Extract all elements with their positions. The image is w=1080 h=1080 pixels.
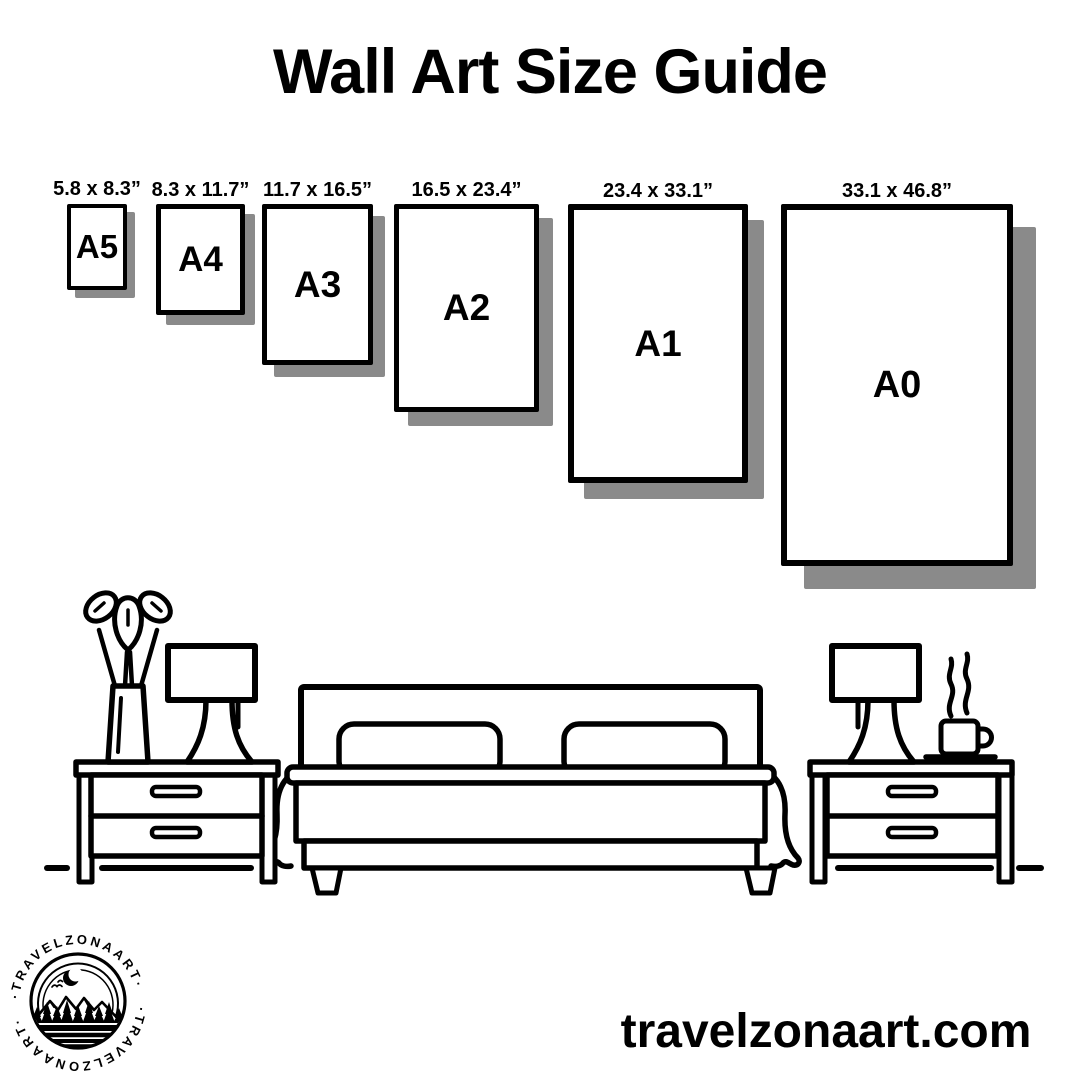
size-dimensions-label: 5.8 x 8.3” <box>53 178 141 201</box>
size-letter: A0 <box>873 364 922 407</box>
size-letter: A4 <box>178 240 223 280</box>
bed-foot-left <box>312 868 341 893</box>
coffee-cup-icon <box>926 654 995 757</box>
nightstand-leg <box>999 775 1012 882</box>
size-dimensions-label: 33.1 x 46.8” <box>842 180 952 203</box>
lamp-shade <box>832 646 919 700</box>
size-card-a3: 11.7 x 16.5” A3 <box>262 204 373 365</box>
cup-body <box>941 721 978 754</box>
size-guide-poster: Wall Art Size Guide 5.8 x 8.3” A5 8.3 x … <box>0 0 1080 1080</box>
size-card-a5: 5.8 x 8.3” A5 <box>67 204 127 290</box>
bedroom-illustration <box>40 585 1050 905</box>
size-card-a4: 8.3 x 11.7” A4 <box>156 204 245 315</box>
moon-icon <box>63 968 83 987</box>
size-dimensions-label: 23.4 x 33.1” <box>603 180 713 203</box>
size-dimensions-label: 8.3 x 11.7” <box>152 179 250 202</box>
lamp-left-icon <box>168 646 255 762</box>
size-card-a1: 23.4 x 33.1” A1 <box>568 204 748 483</box>
bed-icon <box>263 687 799 893</box>
bed-base <box>304 841 757 868</box>
size-letter: A2 <box>443 287 490 329</box>
nightstand-leg <box>812 775 825 882</box>
size-letter: A1 <box>634 323 681 365</box>
lamp-right-icon <box>832 646 919 762</box>
nightstand-right <box>810 762 1012 882</box>
size-letter: A5 <box>76 228 118 266</box>
size-card-a2: 16.5 x 23.4” A2 <box>394 204 539 412</box>
plant-icon <box>80 587 176 762</box>
page-title: Wall Art Size Guide <box>273 36 827 108</box>
size-letter: A3 <box>294 264 341 306</box>
size-card-a0: 33.1 x 46.8” A0 <box>781 204 1013 566</box>
trees-icon <box>31 1000 125 1023</box>
lamp-shade <box>168 646 255 700</box>
bed-foot-right <box>746 868 775 893</box>
steam <box>949 659 952 716</box>
steam <box>965 654 968 713</box>
vase <box>108 686 148 762</box>
logo-ring-text: ·TRAVELZONAART· <box>8 933 147 1000</box>
logo-badge: ·TRAVELZONAART· ·TRAVELZONAART· <box>8 933 148 1073</box>
size-dimensions-label: 16.5 x 23.4” <box>411 179 521 202</box>
birds-icon <box>52 980 63 987</box>
lamp-base <box>187 700 252 762</box>
website-url: travelzonaart.com <box>621 1004 1032 1059</box>
nightstand-left <box>76 762 278 882</box>
mattress-box <box>296 783 765 841</box>
size-dimensions-label: 11.7 x 16.5” <box>263 179 372 202</box>
